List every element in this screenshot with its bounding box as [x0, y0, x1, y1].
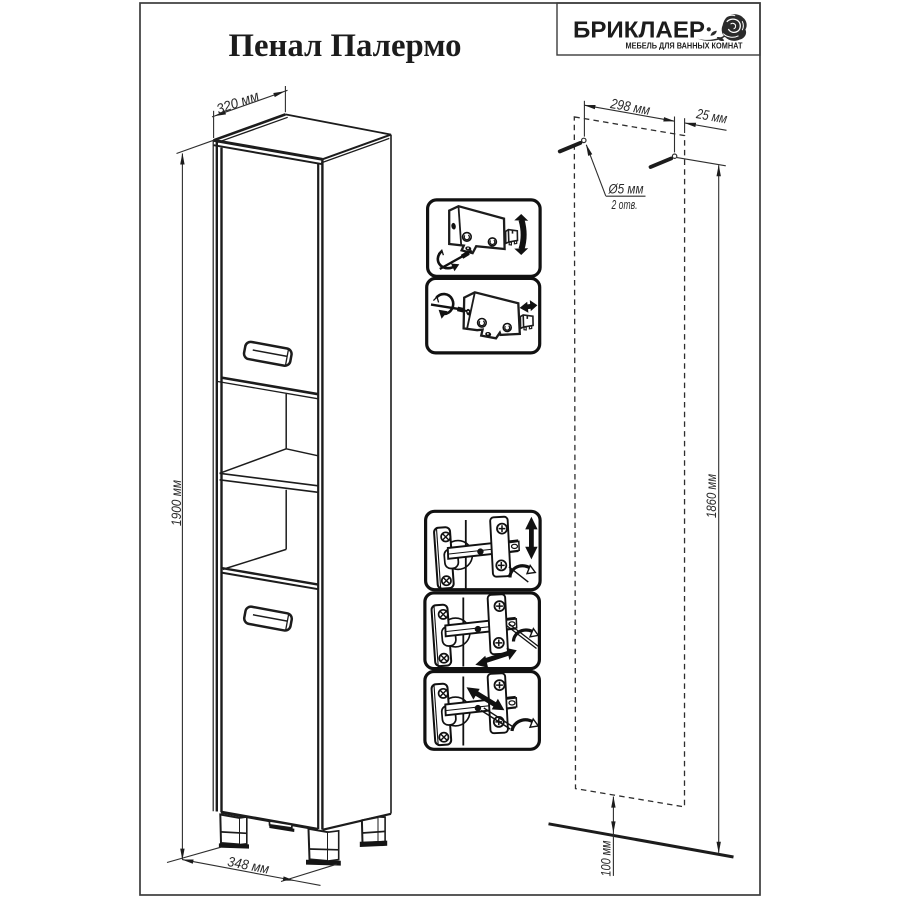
svg-text:2 отв.: 2 отв.: [611, 198, 638, 212]
svg-text:100 мм: 100 мм: [599, 841, 614, 877]
svg-text:298 мм: 298 мм: [608, 95, 651, 118]
svg-text:348 мм: 348 мм: [226, 853, 271, 877]
svg-text:320 мм: 320 мм: [214, 87, 261, 117]
svg-text:БРИКЛАЕР: БРИКЛАЕР: [573, 17, 705, 43]
svg-text:Пенал Палермо: Пенал Палермо: [229, 28, 462, 64]
svg-text:МЕБЕЛЬ ДЛЯ ВАННЫХ КОМНАТ: МЕБЕЛЬ ДЛЯ ВАННЫХ КОМНАТ: [626, 42, 743, 51]
svg-text:1900 мм: 1900 мм: [169, 480, 184, 526]
svg-text:Ø5 мм: Ø5 мм: [608, 182, 644, 197]
svg-text:25 мм: 25 мм: [694, 105, 728, 126]
svg-text:1860 мм: 1860 мм: [704, 474, 719, 518]
